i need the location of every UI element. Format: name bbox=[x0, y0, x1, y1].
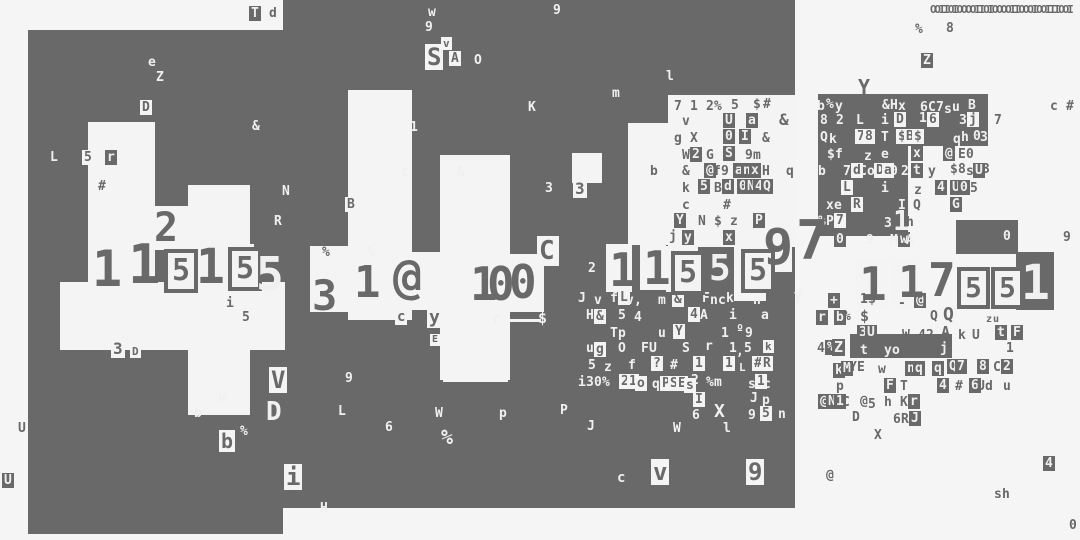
glyph: # bbox=[98, 180, 106, 193]
glyph: r bbox=[816, 310, 828, 325]
glyph: b bbox=[817, 100, 825, 113]
big-digit: 5 bbox=[957, 267, 990, 309]
glyph: Z bbox=[832, 339, 845, 356]
glyph: o bbox=[892, 344, 900, 357]
glyph: $ bbox=[950, 163, 958, 176]
glyph: y bbox=[682, 230, 694, 245]
glyph: 2 bbox=[836, 114, 844, 127]
glyph: T bbox=[249, 6, 261, 21]
glyph: d bbox=[267, 6, 279, 21]
glyph: y bbox=[835, 100, 843, 113]
glyph: 7 bbox=[834, 213, 846, 228]
glyph: 0 bbox=[890, 165, 898, 178]
glyph: % bbox=[441, 427, 453, 447]
glyph: t bbox=[911, 163, 923, 178]
glyph: L bbox=[50, 151, 58, 164]
glyph: c bbox=[763, 378, 771, 391]
glyph: 0 bbox=[594, 376, 602, 389]
glyph: % bbox=[714, 100, 722, 113]
glyph: e bbox=[834, 199, 842, 212]
glyph: H bbox=[890, 99, 898, 112]
glyph: c bbox=[617, 471, 625, 485]
glyph: & bbox=[252, 120, 260, 133]
glyph: m bbox=[753, 149, 761, 162]
glyph: H bbox=[320, 502, 328, 515]
glyph: E bbox=[857, 361, 865, 374]
big-digit: 5 bbox=[991, 267, 1024, 309]
glyph: 9 bbox=[745, 149, 753, 162]
glyph: % bbox=[915, 23, 923, 36]
big-digit: 1 bbox=[128, 238, 161, 292]
glyph: % bbox=[826, 98, 834, 111]
glyph: 1 bbox=[690, 100, 698, 113]
glyph: 1 bbox=[693, 356, 705, 371]
glyph: K bbox=[528, 101, 536, 114]
glyph: 9 bbox=[745, 327, 753, 340]
glyph: j bbox=[940, 342, 948, 355]
big-digit: 1 bbox=[898, 261, 925, 305]
glyph: 2 bbox=[926, 329, 934, 342]
glyph: 6 bbox=[927, 112, 939, 127]
glyph: W bbox=[433, 406, 445, 421]
glyph: s bbox=[944, 103, 952, 116]
glyph: f bbox=[835, 148, 843, 161]
glyph: # bbox=[670, 359, 678, 372]
glyph: x bbox=[911, 146, 923, 161]
glyph: B bbox=[714, 182, 722, 195]
glyph: L bbox=[856, 114, 864, 127]
glyph: & bbox=[457, 166, 465, 179]
glyph: r bbox=[105, 150, 117, 165]
glyph: x bbox=[749, 163, 761, 178]
glyph: & bbox=[779, 112, 789, 128]
glyph: 9 bbox=[425, 21, 433, 34]
glyph: 9 bbox=[721, 165, 729, 178]
glyph: G bbox=[950, 197, 962, 212]
binary-string: OOIIOIOOOOIIOIOOOOIIOOOIOOIIIOOI bbox=[930, 3, 1072, 16]
glyph: 5 bbox=[588, 359, 596, 372]
glyph: X bbox=[690, 132, 698, 145]
glyph: R bbox=[274, 215, 282, 228]
glyph: 8 bbox=[863, 129, 875, 144]
glyph: a bbox=[746, 113, 758, 128]
glyph: 8 bbox=[958, 163, 966, 176]
glyph: t bbox=[860, 344, 868, 357]
glyph: i bbox=[284, 464, 302, 490]
glyph: s bbox=[994, 488, 1002, 501]
glyph: 0 bbox=[1069, 519, 1077, 532]
glyph: 3 bbox=[545, 182, 553, 195]
glyph: + bbox=[828, 293, 840, 308]
glyph: v bbox=[651, 459, 669, 485]
glyph: g bbox=[594, 342, 606, 357]
glyph: 4 bbox=[688, 307, 700, 322]
glyph: Y bbox=[849, 361, 857, 374]
glyph: W bbox=[682, 149, 690, 162]
glyph: $ bbox=[753, 98, 761, 111]
glyph: 2 bbox=[1001, 359, 1013, 374]
glyph: v bbox=[594, 294, 602, 307]
glyph: % bbox=[602, 376, 610, 389]
glyph: U bbox=[18, 422, 26, 435]
glyph: 5 bbox=[698, 179, 710, 194]
glyph: i bbox=[729, 309, 737, 322]
glyph: % bbox=[240, 425, 248, 438]
glyph: x bbox=[723, 230, 735, 245]
glyph: # bbox=[1066, 100, 1074, 113]
glyph: l bbox=[723, 422, 731, 435]
glyph: h bbox=[961, 131, 969, 144]
glyph: D bbox=[140, 100, 152, 115]
glyph: 4 bbox=[935, 180, 947, 195]
big-digit: 1 bbox=[643, 245, 671, 291]
glyph: f bbox=[628, 359, 636, 372]
glyph: z bbox=[730, 215, 738, 228]
glyph: d bbox=[985, 380, 993, 393]
glyph: U bbox=[2, 473, 14, 488]
glyph: D bbox=[852, 411, 860, 424]
big-digit: 5 bbox=[671, 251, 705, 295]
glyph: @ bbox=[826, 469, 834, 482]
glyph: e bbox=[148, 56, 156, 69]
glyph: U bbox=[865, 325, 877, 340]
glyph: D bbox=[130, 345, 141, 358]
glyph: 1 bbox=[723, 356, 735, 371]
light-block bbox=[628, 123, 670, 245]
glyph: 2 bbox=[901, 165, 909, 178]
glyph: h bbox=[884, 396, 892, 409]
glyph: X bbox=[714, 403, 725, 421]
big-digit: 1 bbox=[609, 247, 637, 293]
big-digit: 0 bbox=[509, 259, 537, 305]
glyph: q bbox=[953, 133, 961, 146]
glyph: N bbox=[698, 215, 706, 228]
glyph: 3 bbox=[573, 180, 587, 198]
glyph: & bbox=[762, 132, 770, 145]
glyph: & bbox=[682, 165, 690, 178]
glyph: $ bbox=[860, 309, 869, 324]
glyph: 1 bbox=[919, 112, 927, 125]
glyph: z bbox=[986, 315, 992, 325]
glyph: 9 bbox=[746, 459, 764, 485]
glyph: Y bbox=[794, 292, 802, 305]
glyph: L bbox=[338, 405, 346, 418]
glyph: V bbox=[269, 367, 287, 393]
glyph: y bbox=[884, 344, 892, 357]
big-digit: 1 bbox=[354, 261, 381, 305]
glyph: m bbox=[610, 86, 622, 101]
glyph: b bbox=[818, 165, 826, 178]
glyph: L bbox=[739, 362, 746, 373]
big-digit: D bbox=[266, 399, 282, 425]
glyph: k bbox=[726, 292, 734, 305]
glyph: 9 bbox=[748, 409, 756, 422]
glyph: z bbox=[864, 150, 872, 163]
glyph: 7 bbox=[955, 359, 967, 374]
glyph: Y bbox=[858, 77, 870, 97]
glyph: 0 bbox=[723, 129, 735, 144]
glyph: Q bbox=[930, 310, 938, 323]
glyph: Q bbox=[761, 179, 773, 194]
glyph: L bbox=[841, 180, 853, 195]
glyph: E bbox=[430, 334, 440, 346]
big-digit: @ bbox=[393, 253, 422, 301]
glyph: F bbox=[1011, 325, 1023, 340]
glyph: k bbox=[958, 329, 966, 342]
glyph: U bbox=[649, 342, 657, 355]
glyph: T bbox=[610, 327, 618, 340]
glyph: , bbox=[736, 345, 744, 358]
glyph: Z bbox=[921, 53, 933, 68]
glyph: T bbox=[900, 380, 908, 393]
glyph: F bbox=[641, 342, 649, 355]
glyph: F bbox=[884, 378, 896, 393]
glyph: Z bbox=[156, 71, 164, 84]
glyph: y bbox=[427, 308, 442, 328]
glyph: S bbox=[425, 44, 443, 70]
glyph: 6 bbox=[385, 421, 393, 434]
glyph: Q bbox=[820, 131, 828, 144]
glyph: 5 bbox=[618, 309, 626, 322]
glyph: J bbox=[750, 392, 758, 405]
glyph: t bbox=[995, 325, 1007, 340]
big-digit: 1 bbox=[92, 244, 122, 294]
big-digit: 5 bbox=[707, 250, 733, 288]
glyph: b bbox=[648, 164, 660, 179]
glyph: m bbox=[714, 376, 722, 389]
glyph: 4 bbox=[634, 311, 642, 324]
glyph: E bbox=[958, 148, 966, 161]
glyph: c bbox=[718, 294, 726, 307]
glyph: H bbox=[762, 165, 770, 178]
big-digit: 7 bbox=[928, 257, 956, 303]
glyph: f bbox=[713, 165, 721, 178]
glyph: i bbox=[881, 114, 889, 127]
glyph: u bbox=[1003, 380, 1011, 393]
glyph: b bbox=[219, 430, 235, 452]
glyph: u bbox=[658, 327, 666, 340]
glyph: c bbox=[682, 199, 690, 212]
glyph: w bbox=[878, 363, 886, 376]
glyph: 2 bbox=[690, 147, 702, 162]
glyph: 3 bbox=[982, 163, 990, 176]
big-digit: 9 bbox=[763, 222, 793, 272]
glyph: U bbox=[723, 113, 735, 128]
glyph: t bbox=[401, 166, 409, 179]
glyph: & bbox=[882, 99, 890, 112]
glyph: 0 bbox=[958, 180, 970, 195]
glyph: p bbox=[497, 406, 509, 421]
glyph: k bbox=[763, 340, 774, 353]
glyph: 0 bbox=[834, 232, 846, 247]
glyph: Q bbox=[913, 199, 921, 212]
glyph: 1 bbox=[1006, 342, 1014, 355]
glyph: 3 bbox=[980, 131, 988, 144]
glyph: & bbox=[594, 309, 606, 324]
glyph: D bbox=[894, 112, 906, 127]
glyph: o bbox=[635, 376, 647, 391]
glyph: z bbox=[914, 184, 922, 197]
glyph: A bbox=[449, 51, 461, 66]
glyph: @ bbox=[943, 146, 955, 161]
glyph: 4 bbox=[918, 329, 926, 342]
glyph: $ bbox=[714, 215, 722, 228]
glyph: g bbox=[674, 132, 682, 145]
big-digit: 3 bbox=[312, 275, 337, 317]
glyph: u bbox=[218, 391, 226, 404]
glitch-art-canvas: TdeZD&L5r#NRBi5Dub%UUHw9vAO9mlK1t&3b%712… bbox=[0, 0, 1080, 540]
glyph: 8 bbox=[977, 359, 989, 374]
glyph: u bbox=[993, 315, 999, 325]
glyph: 3 bbox=[111, 340, 125, 358]
glyph: l bbox=[666, 70, 674, 83]
glyph: N bbox=[282, 185, 290, 198]
glyph: R bbox=[901, 413, 909, 426]
glyph: A bbox=[700, 309, 708, 322]
glyph: 2 bbox=[691, 374, 699, 387]
glyph: q bbox=[913, 361, 925, 376]
glyph: C bbox=[859, 165, 867, 178]
glyph: R bbox=[761, 356, 773, 371]
glyph: # bbox=[763, 98, 771, 111]
glyph: 9 bbox=[345, 372, 353, 385]
glyph: W bbox=[673, 422, 681, 435]
glyph: # bbox=[955, 380, 963, 393]
glyph: 8 bbox=[946, 22, 954, 35]
glyph: b bbox=[194, 407, 202, 420]
glyph: z bbox=[604, 361, 612, 374]
glyph: k bbox=[682, 182, 690, 195]
glyph: G bbox=[706, 149, 714, 162]
glyph: W bbox=[902, 329, 910, 342]
glyph: 9 bbox=[1063, 231, 1071, 244]
glyph: Y bbox=[674, 213, 686, 228]
big-digit: C bbox=[539, 238, 555, 264]
glyph: Q bbox=[941, 305, 956, 325]
glyph: y bbox=[928, 165, 936, 178]
glyph: 0 bbox=[1001, 229, 1013, 244]
glyph: 7 bbox=[994, 114, 1002, 127]
glyph: n bbox=[753, 294, 761, 307]
glyph: B bbox=[345, 197, 357, 212]
glyph: U bbox=[977, 380, 985, 393]
light-block bbox=[443, 358, 508, 382]
glyph: 6 bbox=[692, 409, 700, 422]
glyph: º bbox=[736, 324, 744, 337]
glyph: 7 bbox=[843, 165, 851, 178]
glyph: 5 bbox=[242, 311, 250, 324]
glyph: 3 bbox=[959, 114, 967, 127]
glyph: q bbox=[652, 378, 660, 391]
glyph: X bbox=[874, 429, 882, 442]
glyph: c bbox=[395, 309, 407, 325]
light-block bbox=[505, 319, 541, 322]
glyph: T bbox=[881, 131, 889, 144]
glyph: k bbox=[829, 133, 837, 146]
glyph: n bbox=[710, 294, 718, 307]
glyph: 5 bbox=[970, 182, 978, 195]
glyph: C bbox=[842, 396, 850, 409]
glyph: # bbox=[723, 199, 731, 212]
glyph: S bbox=[682, 342, 690, 355]
glyph: m bbox=[658, 294, 666, 307]
glyph: i bbox=[881, 182, 889, 195]
glyph: i bbox=[226, 297, 234, 310]
glyph: ? bbox=[651, 356, 663, 371]
glyph: S bbox=[723, 146, 735, 161]
glyph: 4 bbox=[1043, 456, 1055, 471]
glyph: 4 bbox=[937, 378, 949, 393]
big-digit: 5 bbox=[256, 251, 284, 297]
glyph: $ bbox=[912, 129, 924, 144]
glyph: O bbox=[618, 342, 626, 355]
glyph: a bbox=[761, 309, 769, 322]
glyph: 5 bbox=[729, 98, 741, 113]
big-digit: 1 bbox=[893, 207, 910, 235]
glyph: q bbox=[786, 165, 794, 178]
glyph: Y bbox=[673, 324, 685, 339]
glyph: r bbox=[908, 394, 920, 409]
glyph: J bbox=[578, 292, 586, 305]
glyph: 3 bbox=[884, 217, 892, 230]
glyph: H bbox=[586, 309, 594, 322]
glyph: r bbox=[492, 311, 501, 326]
glyph: n bbox=[776, 407, 788, 422]
glyph: % bbox=[706, 376, 714, 389]
glyph: P bbox=[560, 404, 568, 417]
glyph: A bbox=[941, 325, 950, 340]
glyph: 2 bbox=[706, 100, 714, 113]
glyph: r bbox=[705, 340, 713, 353]
glyph: 4 bbox=[817, 342, 825, 355]
glyph: I bbox=[739, 129, 751, 144]
glyph: 5 bbox=[868, 398, 876, 411]
glyph: c bbox=[1050, 100, 1058, 113]
glyph: u bbox=[586, 342, 594, 355]
glyph: 5 bbox=[744, 342, 752, 355]
glyph: 9 bbox=[551, 3, 563, 18]
glyph: B bbox=[968, 99, 976, 112]
glyph: O bbox=[474, 54, 482, 67]
glyph: R bbox=[851, 197, 863, 212]
glyph: J bbox=[909, 411, 921, 426]
glyph: p bbox=[836, 380, 844, 393]
glyph: I bbox=[693, 392, 705, 407]
glyph: d bbox=[722, 179, 734, 194]
glyph: 0 bbox=[966, 148, 974, 161]
glyph: 9 bbox=[866, 234, 874, 247]
glyph: $ bbox=[827, 148, 835, 161]
big-digit: 1 bbox=[859, 261, 887, 307]
glyph: K bbox=[900, 396, 908, 409]
big-digit: 7 bbox=[796, 214, 829, 268]
glyph: @ bbox=[860, 395, 868, 408]
glyph: 6 bbox=[893, 413, 901, 426]
glyph: 2 bbox=[588, 262, 596, 275]
big-digit: 1 bbox=[1021, 259, 1050, 307]
glyph: q bbox=[932, 361, 944, 376]
glyph: 1 bbox=[410, 121, 418, 134]
glyph: C bbox=[993, 361, 1001, 374]
glyph: % bbox=[322, 246, 330, 259]
glyph: v bbox=[682, 115, 690, 128]
glyph: i bbox=[578, 376, 586, 389]
glyph: j bbox=[967, 112, 979, 127]
glyph: e bbox=[881, 148, 889, 161]
glyph: 5 bbox=[82, 150, 94, 165]
glyph: w bbox=[428, 6, 436, 19]
big-digit: 5 bbox=[164, 249, 198, 293]
